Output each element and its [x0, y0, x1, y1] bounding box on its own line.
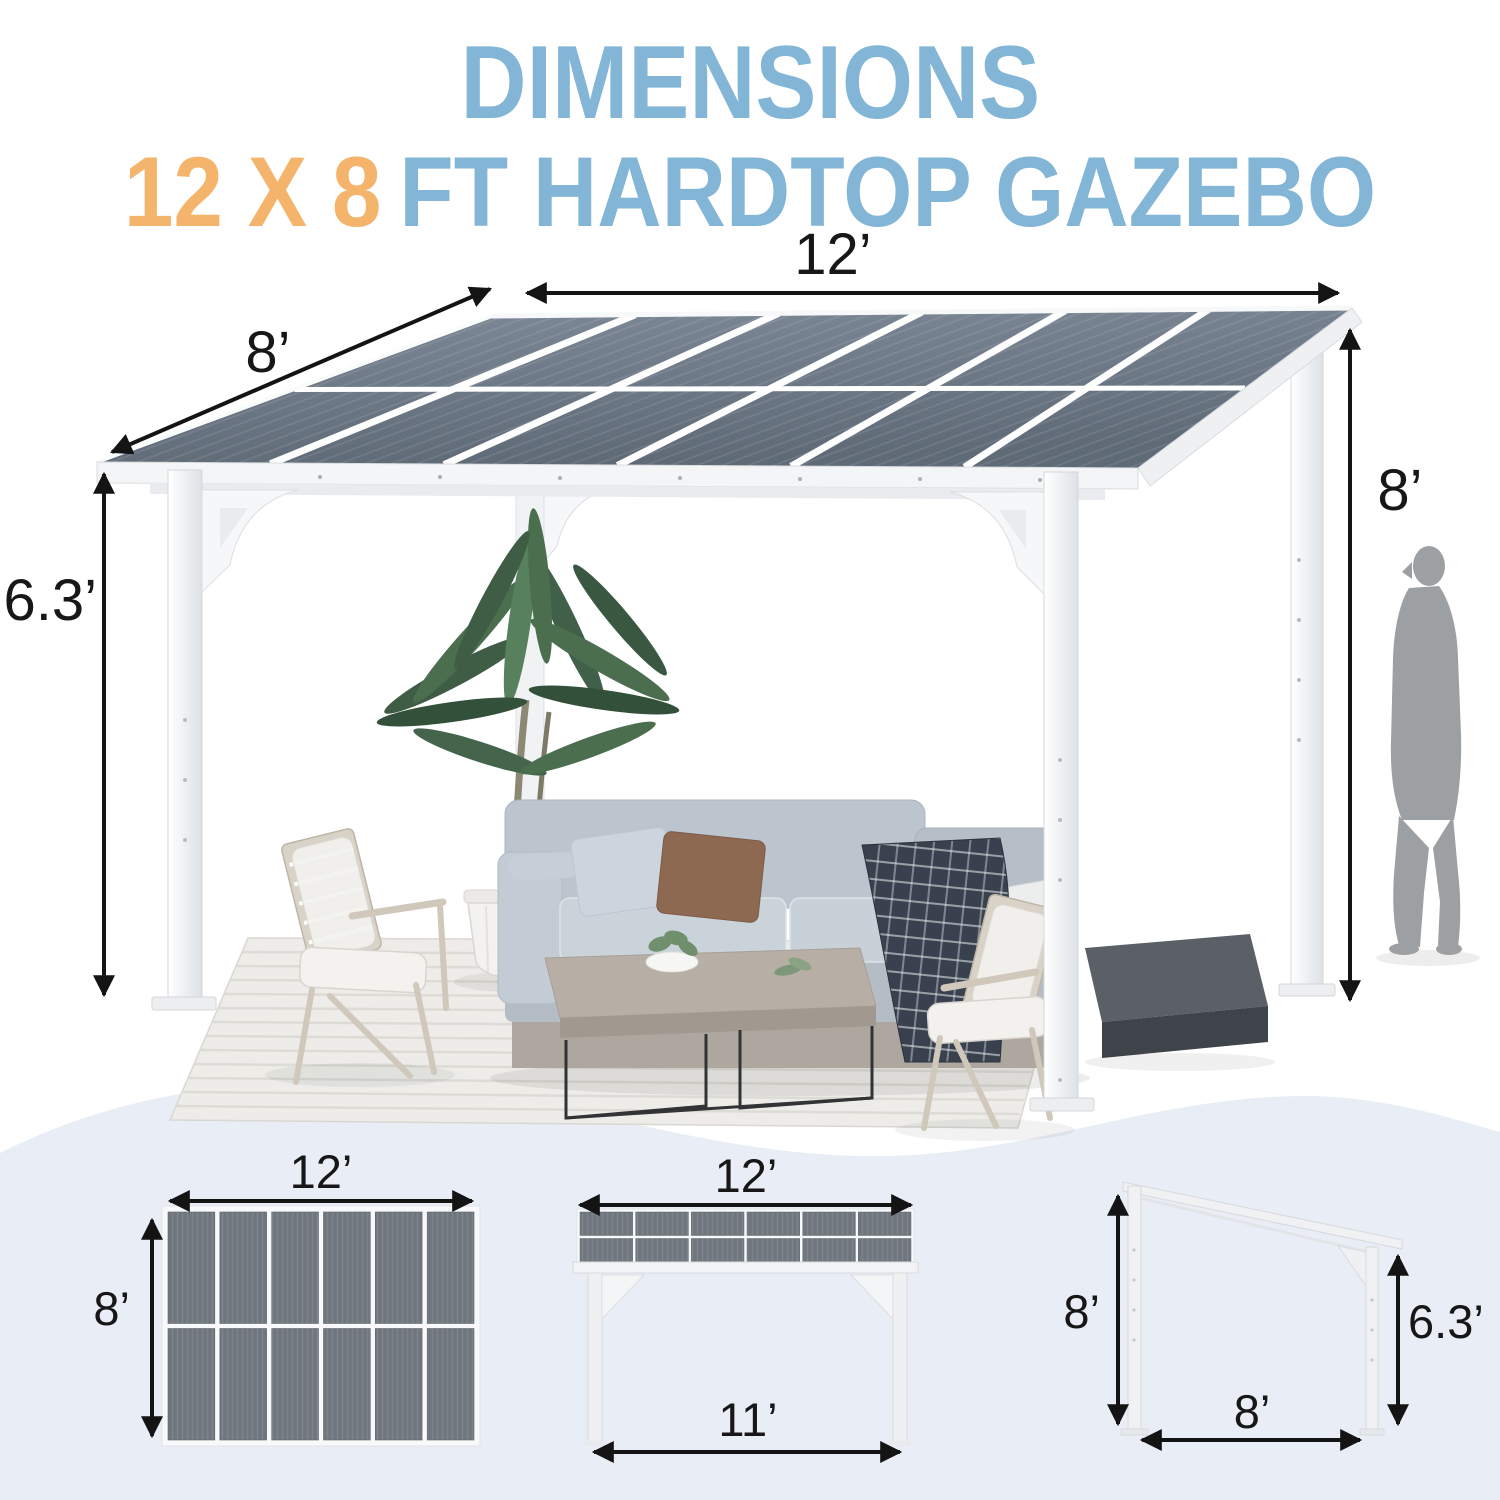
label-rear-height: 8’ — [1377, 458, 1422, 523]
human-scale-silhouette — [1376, 546, 1480, 966]
post-rear-right — [1279, 318, 1335, 996]
label-side-view-rear-height: 8’ — [1063, 1285, 1100, 1338]
front-view-post-left — [588, 1273, 602, 1443]
side-view-foot-front — [1360, 1429, 1384, 1435]
label-front-view-span: 11’ — [718, 1393, 777, 1446]
label-front-view-width: 12’ — [715, 1149, 778, 1202]
label-side-view-depth: 8’ — [1234, 1385, 1271, 1438]
front-view-post-right — [893, 1273, 907, 1443]
side-view-foot-rear — [1121, 1429, 1148, 1435]
label-top-view-depth: 8’ — [93, 1282, 130, 1335]
label-roof-width: 12’ — [794, 222, 871, 287]
gazebo-main-illustration: 12’ 8’ 8’ 6.3’ — [3, 222, 1480, 1141]
diagram-canvas: 12’ 8’ 8’ 6.3’ 12’ 8’ — [0, 0, 1500, 1500]
post-front-left — [152, 470, 298, 1010]
label-side-view-front-height: 6.3’ — [1408, 1295, 1484, 1348]
front-view-beam — [573, 1262, 918, 1273]
label-front-height: 6.3’ — [3, 568, 97, 633]
front-view-foot-right — [889, 1441, 911, 1446]
label-top-view-width: 12’ — [290, 1145, 353, 1198]
side-view-post-front — [1366, 1247, 1378, 1432]
storage-box — [1085, 934, 1275, 1071]
front-view-foot-left — [584, 1441, 606, 1446]
gazebo-dimensions-infographic: { "header": { "title": "DIMENSIONS", "su… — [0, 0, 1500, 1500]
label-roof-depth: 8’ — [245, 320, 290, 385]
sofa-pillow-brown — [656, 831, 766, 923]
